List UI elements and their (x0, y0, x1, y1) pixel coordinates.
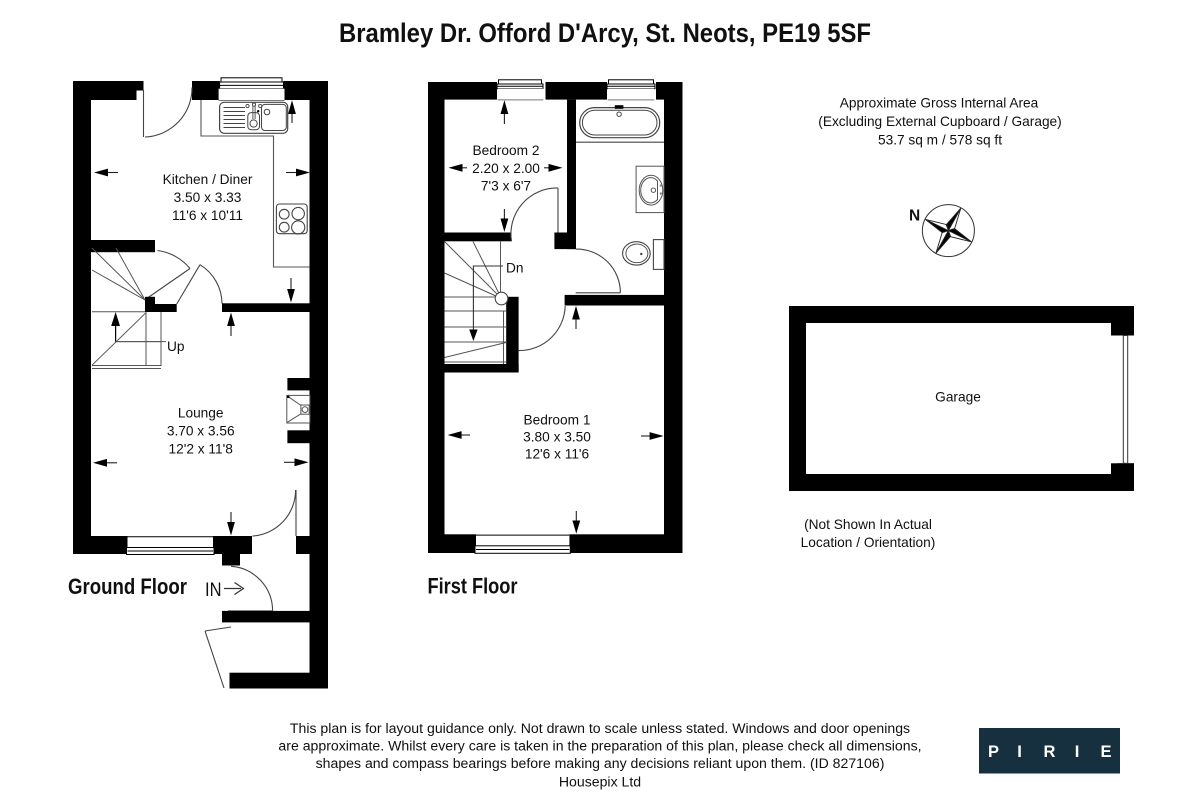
svg-text:P: P (988, 743, 999, 761)
svg-text:(Excluding External Cupboard /: (Excluding External Cupboard / Garage) (818, 114, 1061, 129)
svg-text:Ground Floor: Ground Floor (68, 574, 187, 599)
svg-text:3.80 x 3.50: 3.80 x 3.50 (523, 430, 591, 445)
svg-text:E: E (1100, 743, 1111, 761)
svg-text:3.70 x 3.56: 3.70 x 3.56 (167, 424, 235, 439)
svg-text:7'3 x 6'7: 7'3 x 6'7 (481, 179, 531, 194)
svg-text:This plan is for layout guidan: This plan is for layout guidance only. N… (290, 720, 910, 736)
svg-text:12'6 x 11'6: 12'6 x 11'6 (525, 447, 590, 462)
svg-text:I: I (1075, 743, 1080, 761)
svg-text:Location / Orientation): Location / Orientation) (801, 535, 936, 550)
svg-text:2.20 x 2.00: 2.20 x 2.00 (472, 161, 540, 176)
svg-text:Kitchen / Diner: Kitchen / Diner (163, 172, 253, 187)
svg-text:Approximate Gross Internal Are: Approximate Gross Internal Area (840, 96, 1039, 111)
svg-text:11'6 x 10'11: 11'6 x 10'11 (172, 208, 243, 223)
svg-text:12'2 x 11'8: 12'2 x 11'8 (169, 442, 234, 457)
svg-text:Garage: Garage (935, 390, 981, 405)
svg-text:I: I (1017, 743, 1022, 761)
svg-text:Bedroom 1: Bedroom 1 (524, 413, 591, 428)
svg-text:are approximate. Whilst every: are approximate. Whilst every care is ta… (278, 738, 921, 754)
svg-text:shapes and compass bearings be: shapes and compass bearings before makin… (316, 755, 885, 771)
svg-text:IN: IN (205, 579, 222, 601)
svg-text:Lounge: Lounge (178, 406, 224, 421)
svg-text:53.7 sq m / 578 sq ft: 53.7 sq m / 578 sq ft (878, 133, 1002, 148)
svg-text:Up: Up (167, 339, 185, 354)
svg-text:First Floor: First Floor (428, 574, 518, 599)
svg-text:3.50 x 3.33: 3.50 x 3.33 (174, 190, 242, 205)
svg-text:(Not Shown In Actual: (Not Shown In Actual (804, 517, 932, 532)
svg-text:Bramley Dr. Offord D'Arcy, St.: Bramley Dr. Offord D'Arcy, St. Neots, PE… (339, 18, 871, 48)
svg-text:R: R (1044, 743, 1056, 761)
svg-text:Dn: Dn (506, 261, 524, 276)
svg-text:N: N (909, 208, 920, 225)
svg-text:Bedroom 2: Bedroom 2 (473, 143, 540, 158)
svg-text:Housepix Ltd: Housepix Ltd (559, 774, 641, 790)
